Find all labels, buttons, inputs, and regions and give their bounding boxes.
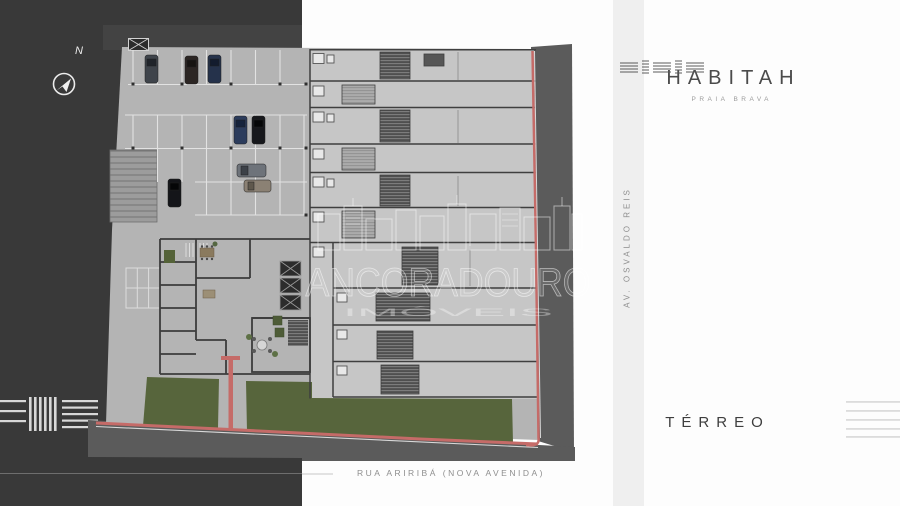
logo-subtitle: PRAIA BRAVA [620,96,840,103]
car [234,116,247,144]
car [208,55,221,83]
car [185,56,198,84]
street-label-rua-ariribá: RUA ARIRIBÁ (NOVA AVENIDA) [331,468,571,478]
habitah-logo-mark-icon [620,60,704,76]
car [252,116,265,144]
watermark-subtitle: IMÓVEIS [343,306,553,319]
elevator-shafts [280,261,301,310]
car [237,164,266,177]
exterior-stairs [110,150,157,222]
floor-label: TÉRREO [644,414,784,431]
presentation-page: ANCORADOURO IMÓVEIS N HABITAH PRAIA BRAV… [0,0,900,506]
car [168,179,181,207]
brand-logo: HABITAH PRAIA BRAVA [620,60,840,103]
core-stairs [288,320,308,346]
watermark-title: ANCORADOURO [306,261,591,305]
compass-north-label: N [75,45,83,57]
street-label-av-osvaldo-reis: AV. OSVALDO REIS [623,178,636,318]
ramp-hatch-box [129,39,149,51]
car [145,55,158,83]
car [244,180,271,192]
